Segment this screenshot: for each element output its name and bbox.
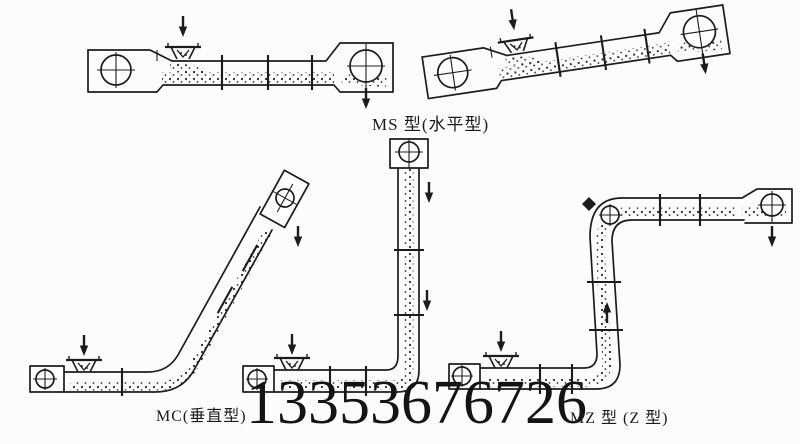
watermark-phone-number: 13353676726	[246, 372, 587, 434]
discharge-arrow-icon	[294, 226, 302, 247]
l-shaped-conveyor-figure	[243, 138, 433, 396]
mz-z-shaped-conveyor-figure	[449, 189, 792, 394]
mz-type-label: MZ 型 (Z 型)	[570, 404, 668, 428]
discharge-arrow-icon	[425, 182, 433, 203]
scanned-conveyor-diagram-page: MS 型(水平型) MC(垂直型) MZ 型 (Z 型) 13353676726	[0, 0, 800, 444]
ms-horizontal-conveyor-figure	[88, 16, 393, 109]
mc-vertical-conveyor-figure	[30, 170, 309, 396]
mc-type-label: MC(垂直型)	[156, 402, 247, 426]
discharge-arrow-icon	[768, 226, 776, 247]
ms-type-label: MS 型(水平型)	[372, 110, 489, 135]
corner-bearing-icon	[582, 197, 596, 211]
ms-inclined-conveyor-figure	[417, 0, 732, 115]
